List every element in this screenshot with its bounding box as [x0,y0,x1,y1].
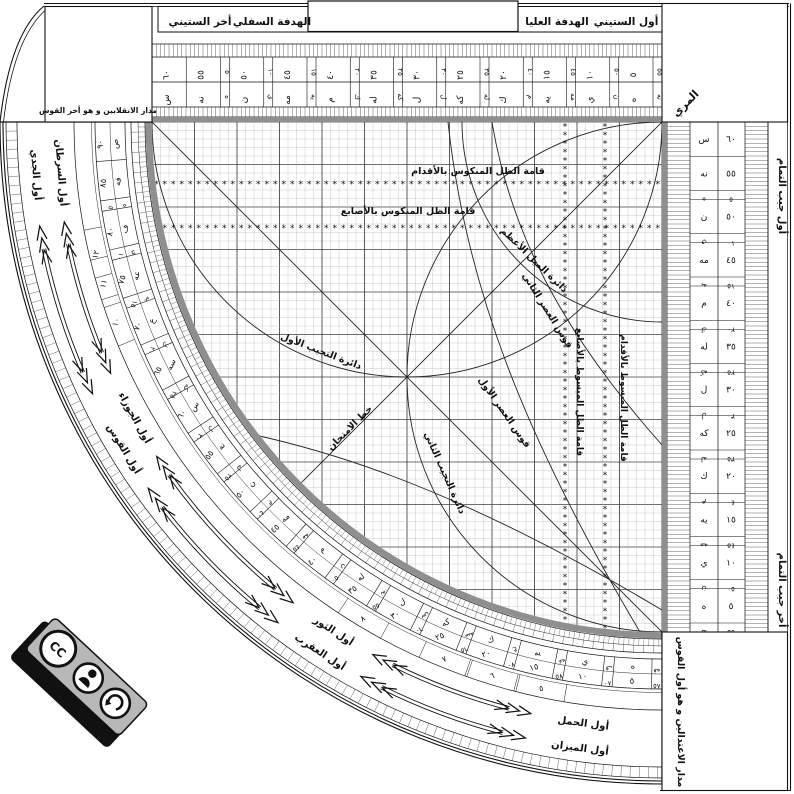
star-marker: * [324,224,329,234]
star-marker: * [622,224,627,234]
sexagesimal-degree: ٦٠ [162,70,172,80]
lane-digit: ٦ [489,671,496,681]
star-marker: * [409,224,414,234]
cosine-complement: ٢٠ [727,325,735,334]
star-marker: * [333,180,338,190]
star-marker: * [630,180,635,190]
sexagesimal-degree: ٥٠ [240,70,250,80]
star-marker: * [647,224,652,234]
star-marker: * [477,180,482,190]
limb-degree: ٤٥ [268,522,281,535]
sexagesimal-complement-abjad: ن [612,94,621,99]
sexagesimal-abjad: نه [196,96,206,103]
label-akhir-sittini: أخر الستيني [168,14,231,28]
cosine-abjad: ي [700,559,707,569]
star-marker: * [622,180,627,190]
limb-complement: ١٠ [115,252,124,261]
sexagesimal-complement-abjad: مه [569,93,578,101]
star-marker: * [384,180,389,190]
star-marker: * [452,224,457,234]
sexagesimal-complement: ٥٠ [612,68,621,76]
star-marker: * [358,180,363,190]
limb-abjad: س [187,399,201,413]
limb-degree: ٥٠ [233,486,246,499]
limb-abjad: يه [533,646,543,657]
limb-abjad: ي [581,656,589,667]
cosine-complement-abjad: مه [700,542,708,551]
star-marker: * [180,224,185,234]
limb-abjad: مه [278,511,291,524]
star-marker: * [205,224,210,234]
zodiac-arrow-shaft [67,244,101,353]
limb-degree: ٢٠ [480,647,492,659]
limb-complement: ٣٠ [194,432,205,443]
cosine-complement-abjad: م [702,498,706,507]
limb-degree: ٧٠ [131,320,144,332]
cosine-degree: ٢٠ [726,472,736,482]
star-marker: * [639,180,644,190]
limb-complement: ٨٠ [604,679,612,688]
star-marker: * [341,224,346,234]
sexagesimal-degree: ١٥ [542,70,552,80]
star-marker: * [418,180,423,190]
zodiac-arrow-shaft [164,506,261,607]
zodiac-arrow-shaft [382,686,503,731]
zodiac-arrow-shaft [46,249,85,372]
star-marker: * [426,180,431,190]
star-marker: * [520,224,525,234]
limb-complement-abjad: كه [181,383,192,394]
star-marker: * [520,180,525,190]
limb-abjad: له [355,571,366,583]
sexagesimal-degree: ٤٠ [326,70,336,80]
cosine-abjad: ه [702,602,707,612]
sexagesimal-complement: ١٠ [266,68,275,76]
cosine-complement: ٥٠ [727,585,735,594]
limb-abjad: ه [630,661,635,671]
limb-degree: ٣٠ [389,608,402,621]
label-hadafa-sufla: الهدفة السفلي [233,16,311,28]
limb-abjad: فه [112,177,123,186]
star-marker: * [537,224,542,234]
star-marker: * [503,180,508,190]
limb-degree: ٢٥ [433,630,445,643]
sexagesimal-complement: ٢٥ [396,68,405,76]
sexagesimal-abjad: ن [240,97,250,104]
cosine-degree: ٢٥ [726,429,736,439]
cosine-abjad: يه [700,515,708,525]
equinox-box-label: مدار الاعتدالين و هو أول القوس [675,637,688,788]
star-marker: * [273,224,278,234]
sexagesimal-complement: ٣٥ [483,68,492,76]
cosine-complement: ١٠ [727,239,735,248]
sine-grid [152,122,662,632]
limb-complement: ٥٥ [370,601,381,612]
star-marker: * [656,224,661,234]
cosine-degree: ٤٠ [726,299,736,309]
star-marker: * [579,180,584,190]
label-mabsut-feet: قامة الظل المبسوط بالأقدام [618,334,630,462]
star-marker: * [435,180,440,190]
sexagesimal-complement: ٤٥ [569,68,578,76]
cosine-degree: ١٥ [726,515,736,525]
star-marker: * [537,180,542,190]
limb-degree: ١٠ [577,670,587,681]
cosine-abjad: س [699,135,710,145]
sexagesimal-abjad: م [326,97,336,103]
cosine-degree: ٣٥ [726,342,736,352]
limb-abjad: ك [486,634,496,646]
cosine-abjad: له [700,342,708,352]
sine-quadrant-diagram: ٩٠ص٨٥فه٥ه٨٠ف١٠ي٧٥عه١٥يه٧٠ع٢٠ك٦٥سه٢٥كه٦٠س… [0,0,794,794]
star-marker: * [163,180,168,190]
limb-degree: ٥٥ [202,448,215,461]
cosine-complement: ٤٠ [727,498,735,507]
sexagesimal-degree: ٢٠ [499,70,509,80]
limb-degree: ٧٥ [116,274,128,285]
star-marker: * [316,224,321,234]
star-marker: * [486,180,491,190]
lane-digit: ٨ [359,613,368,623]
cosine-degree: ٥٥ [726,169,736,179]
quadrant-svg: ٩٠ص٨٥فه٥ه٨٠ف١٠ي٧٥عه١٥يه٧٠ع٢٠ك٦٥سه٢٥كه٦٠س… [0,0,794,794]
limb-degree: ٤٠ [305,554,318,567]
star-marker: * [197,224,202,234]
star-marker: * [273,180,278,190]
star-marker: * [528,180,533,190]
cosine-complement: ٣٠ [727,412,735,421]
star-marker: * [443,224,448,234]
star-marker: * [367,224,372,234]
star-marker: * [401,180,406,190]
limb-abjad: ن [246,478,258,489]
sexagesimal-degree: ٣٥ [369,70,379,80]
sexagesimal-abjad: له [369,96,379,104]
zodiac-label: أول الحمل [557,713,610,733]
star-marker: * [265,224,270,234]
grid-border-strip-right [662,122,667,632]
star-marker: * [350,180,355,190]
star-marker: * [392,224,397,234]
limb-complement-abjad: له [235,463,245,472]
arrowhead-chevron [245,595,259,608]
star-marker: * [188,180,193,190]
straight-scale-bands: ٦٠س٥٥نه٥ه٥٠ن١٠ي٤٥مه١٥يه٤٠م٢٠ك٣٥له٢٥كه٣٠ل… [152,44,768,637]
star-marker: * [171,180,176,190]
star-marker: * [571,180,576,190]
star-marker: * [384,224,389,234]
label-asr-awwal: قوس العصر الأول [475,374,533,450]
star-marker: * [214,180,219,190]
sexagesimal-complement: ١٥ [310,68,319,76]
arrowhead-chevron [163,508,176,522]
cosine-complement: ٣٥ [727,455,735,464]
arrowhead-chevron [67,245,77,259]
limb-degree: ٦٠ [175,408,188,421]
label-awwal-sittini: أول الستيني [594,14,659,28]
solstice-box-label: مدار الانقلابين و هو أخر القوس [39,105,157,115]
cosine-complement: ١٥ [727,282,735,291]
star-marker: * [205,180,210,190]
cosine-abjad: كه [699,429,709,439]
limb-degree: ١٥ [528,661,539,673]
limb-abjad: سه [164,357,178,372]
zodiac-label: أول السرطان [52,139,70,207]
limb-degree: ٨٥ [97,178,108,188]
star-marker: * [571,224,576,234]
cosine-abjad: مه [699,256,709,266]
zodiac-arrow-shaft [168,476,275,591]
star-marker: * [443,180,448,190]
cosine-complement: ٢٥ [727,369,735,378]
star-marker: * [656,180,661,190]
label-awwal-jayb-tamam: أول جيب التمام [776,158,789,234]
sexagesimal-abjad: ل [413,97,423,104]
star-marker: * [418,224,423,234]
star-marker: * [579,224,584,234]
star-marker: * [375,224,380,234]
star-marker: * [222,180,227,190]
star-marker: * [596,180,601,190]
sexagesimal-abjad: يه [542,96,552,104]
cosine-abjad: ك [700,472,707,482]
sexagesimal-abjad: ه [629,97,639,102]
limb-abjad: عه [130,269,142,281]
sexagesimal-abjad: كه [456,95,466,105]
cc-license-badge: CC BY SA [8,613,148,750]
star-marker: * [375,180,380,190]
star-marker: * [630,224,635,234]
cosine-complement: ٤٥ [727,542,735,551]
cosine-complement-abjad: له [701,455,707,464]
lane-digit: ٥ [538,684,544,694]
limb-abjad: كه [440,616,452,629]
star-marker: * [290,224,295,234]
sexagesimal-degree: ٥٥ [196,70,206,80]
sexagesimal-complement-abjad: يه [310,94,319,100]
star-marker: * [290,180,295,190]
star-marker: * [333,224,338,234]
sexagesimal-degree: ٥ [629,72,639,77]
lane-digit: ٧ [441,654,449,664]
star-marker: * [639,224,644,234]
outer-corner-arc [0,6,44,122]
star-marker: * [307,180,312,190]
limb-complement-abjad: ف [605,664,613,673]
star-marker: * [256,180,261,190]
star-marker: * [324,180,329,190]
star-marker: * [248,180,253,190]
cosine-abjad: نه [700,169,707,179]
star-marker: * [460,224,465,234]
sexagesimal-degree: ٣٠ [413,70,423,80]
star-marker: * [367,180,372,190]
zodiac-arrow-shaft [171,474,277,588]
cosine-degree: ٤٥ [726,256,736,266]
zodiac-label: أول الميزان [550,737,609,757]
sexagesimal-degree: ١٠ [586,70,596,80]
label-mankus-fingers: قامة الظل المنكوس بالأصابع [341,205,476,217]
cosine-degree: ١٠ [726,559,736,569]
star-marker: * [596,224,601,234]
sexagesimal-complement-abjad: كه [396,93,405,101]
limb-degree: ٥ [629,676,634,686]
star-marker: * [613,180,618,190]
star-marker: * [469,180,474,190]
sexagesimal-complement-abjad: ل [439,94,448,99]
limb-abjad: ل [397,596,407,608]
star-marker: * [265,180,270,190]
cosine-degree: ٥٠ [726,213,736,223]
cosine-degree: ٥ [729,602,734,612]
limb-complement: ٣٥ [222,472,233,483]
sexagesimal-abjad: ي [586,96,596,103]
star-marker: * [307,224,312,234]
limb-complement-abjad: س [420,611,431,622]
star-marker: * [231,180,236,190]
sexagesimal-complement-abjad: ك [353,94,362,100]
star-marker: * [350,224,355,234]
cosine-degree: ٦٠ [726,135,736,145]
lane-digit: ١١ [98,278,109,289]
star-marker: * [554,224,559,234]
cosine-abjad: م [701,299,707,309]
star-marker: * [392,180,397,190]
star-marker: * [299,224,304,234]
limb-degree: ٨٠ [104,226,116,237]
cosine-abjad: ل [701,386,708,396]
limb-complement-abjad: م [267,499,276,508]
star-marker: * [528,224,533,234]
cosine-complement-abjad: ل [701,412,706,421]
cosine-complement-abjad: يه [701,282,707,291]
limb-complement: ٧٥ [554,672,563,681]
star-marker: * [460,180,465,190]
limb-abjad: ص [110,139,120,149]
sexagesimal-complement: ٢٠ [353,68,362,76]
star-marker: * [511,180,516,190]
cosine-complement-abjad: كه [700,369,708,378]
star-marker: * [435,224,440,234]
star-marker: * [545,224,550,234]
cosine-complement: ٥ [729,196,733,205]
star-marker: * [341,180,346,190]
grid-border-strip-top [152,117,662,122]
limb-abjad: ف [119,224,130,234]
sexagesimal-abjad: ك [499,96,509,103]
star-marker: * [282,224,287,234]
star-marker: * [214,224,219,234]
cosine-abjad: ن [701,213,708,223]
limb-complement: ٨٥ [653,682,661,690]
sexagesimal-complement: ٥ [223,70,232,74]
cosine-degree: ٣٠ [726,386,736,396]
sexagesimal-complement-abjad: ه [223,95,232,99]
star-marker: * [171,224,176,234]
star-marker: * [494,180,499,190]
lane-digit: ١٠ [110,316,121,327]
sexagesimal-complement: ٣٠ [439,68,448,76]
zodiac-label: أول الجدي [28,149,45,201]
star-marker: * [554,180,559,190]
star-marker: * [197,180,202,190]
star-marker: * [401,224,406,234]
arrowhead-chevron [42,250,52,265]
sexagesimal-complement-abjad: م [526,95,535,99]
label-tajyib-thani: دائرة التجيب الثاني [421,430,467,516]
star-marker: * [239,224,244,234]
arrowhead-chevron [262,576,275,588]
star-marker: * [358,224,363,234]
limb-complement-abjad: فه [654,667,661,675]
limb-complement-abjad: سه [464,630,476,641]
star-marker: * [222,224,227,234]
star-marker: * [477,224,482,234]
limb-complement: ٧٠ [506,660,515,670]
cosine-complement-abjad: ن [701,585,706,594]
cosine-complement-abjad: ي [701,239,707,248]
sexagesimal-abjad: س [162,95,172,106]
limb-abjad: نه [215,440,227,451]
sexagesimal-degree: ٤٥ [283,70,293,80]
star-marker: * [282,180,287,190]
star-marker: * [426,224,431,234]
star-marker: * [613,224,618,234]
star-marker: * [231,224,236,234]
label-akhir-jayb-tamam: أخر جيب التمام [776,553,789,628]
sexagesimal-complement-abjad: له [483,94,492,100]
star-marker: * [239,180,244,190]
cosine-complement-abjad: ه [702,196,706,205]
label-tajyib-awwal: دائرة التجيب الأول [279,330,364,372]
star-marker: * [316,180,321,190]
limb-degree: ٩٠ [95,140,105,149]
star-marker: * [469,224,474,234]
limb-complement: ٦٠ [414,625,424,635]
sexagesimal-abjad: مه [283,95,293,105]
star-marker: * [452,180,457,190]
star-marker: * [256,224,261,234]
star-marker: * [409,180,414,190]
star-marker: * [545,180,550,190]
sexagesimal-complement: ٤٠ [526,68,535,76]
limb-abjad: م [316,543,326,554]
star-marker: * [180,180,185,190]
label-mabsut-fingers: قامة الظل المبسوط بالأصابع [574,328,586,456]
star-marker: * [299,180,304,190]
cosine-complement-abjad: ك [701,325,707,334]
star-marker: * [486,224,491,234]
star-marker: * [588,224,593,234]
label-hadafa-ulya: الهدفة العليا [525,16,588,28]
sexagesimal-degree: ٢٥ [456,70,466,80]
label-mankus-feet: قامة الظل المنكوس بالأقدام [411,165,545,177]
solstice-box [45,7,152,123]
limb-abjad: ع [146,316,157,324]
zodiac-label: أول الثور [311,612,357,648]
star-marker: * [188,224,193,234]
star-marker: * [588,180,593,190]
sexagesimal-complement-abjad: ي [266,94,275,100]
star-marker: * [647,180,652,190]
star-marker: * [248,224,253,234]
sight-tab [308,1,518,32]
limb-complement-abjad: ل [207,424,216,433]
limb-complement: ٤٠ [255,509,266,520]
limb-degree: ٦٥ [151,365,164,377]
